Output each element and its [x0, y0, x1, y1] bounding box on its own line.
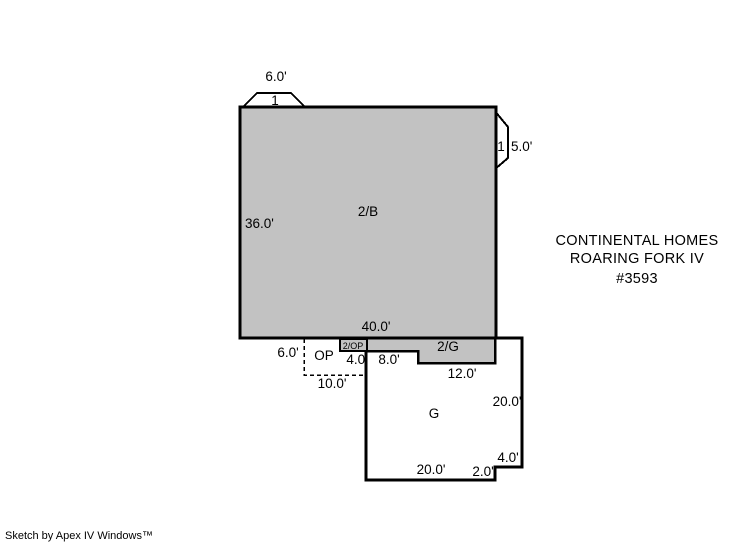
annotation-line2: ROARING FORK IV: [570, 251, 704, 267]
top-bay-label: 1: [271, 93, 279, 108]
garage-bottom-dim: 20.0': [417, 462, 446, 477]
porch-width-dim: 10.0': [318, 376, 347, 391]
garage-overhang-left-dim: 8.0': [378, 352, 399, 367]
annotation-line3: #3593: [616, 271, 658, 287]
porch-height-dim: 6.0': [277, 345, 298, 360]
main-area-shape: [240, 107, 496, 338]
floorplan-canvas: 6.0' 1 1 5.0' 2/B 36.0' 40.0' 2/OP 2/G 6…: [0, 0, 746, 547]
porch-overhang-label: 2/OP: [343, 341, 364, 351]
garage-right-dim: 20.0': [493, 394, 522, 409]
garage-overhang-bottom-dim: 12.0': [448, 366, 477, 381]
top-bay-width-dim: 6.0': [265, 69, 286, 84]
main-side-dim: 36.0': [245, 216, 274, 231]
annotation-line1: CONTINENTAL HOMES: [556, 233, 719, 249]
main-bottom-dim: 40.0': [362, 319, 391, 334]
porch-label: OP: [314, 348, 334, 363]
sketch-page: 6.0' 1 1 5.0' 2/B 36.0' 40.0' 2/OP 2/G 6…: [0, 0, 746, 547]
main-area-label: 2/B: [358, 204, 378, 219]
right-bay-label: 1: [497, 139, 505, 154]
right-bay-depth-dim: 5.0': [511, 139, 532, 154]
garage-overhang-label: 2/G: [437, 339, 459, 354]
garage-notch-width-dim: 4.0': [497, 450, 518, 465]
footer-credit: Sketch by Apex IV Windows™: [5, 530, 153, 542]
garage-label: G: [429, 406, 440, 421]
garage-notch-height-dim: 2.0': [472, 464, 493, 479]
porch-overhang-width-dim: 4.0': [346, 352, 367, 367]
